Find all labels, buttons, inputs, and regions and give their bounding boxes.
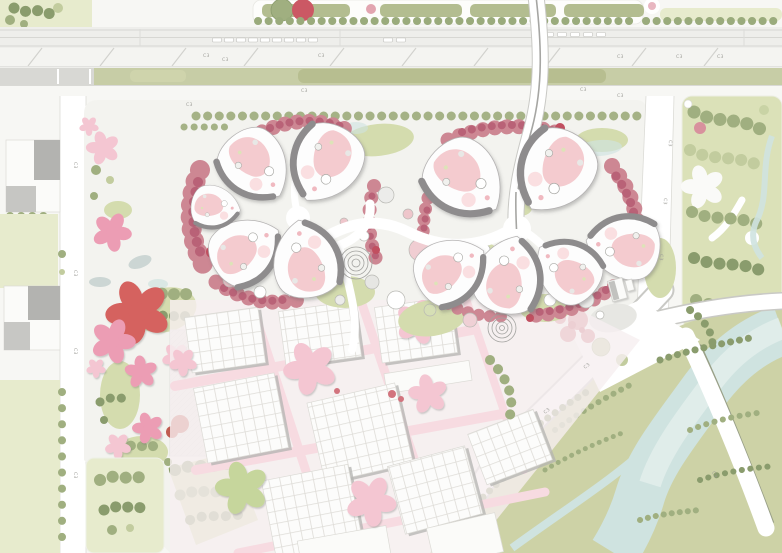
svg-text:C3: C3 [717,54,724,60]
svg-text:C3: C3 [667,140,673,147]
svg-text:C3: C3 [222,57,229,63]
svg-text:C3: C3 [617,93,624,99]
svg-text:C3: C3 [318,53,325,59]
svg-text:C3: C3 [72,348,78,355]
svg-text:C3: C3 [186,102,193,108]
median-strip [0,68,782,85]
svg-text:C3: C3 [301,88,308,94]
southwest-lawn-strip [0,380,60,553]
masterplan-canvas: C3 C3 C3 C3 C3 C3 C3 C3 C3 C3 C3 C3 C3 C… [0,0,782,553]
west-lawn [0,214,58,288]
svg-text:C3: C3 [72,270,78,277]
svg-text:C3: C3 [580,87,587,93]
highway [0,27,782,86]
svg-text:C3: C3 [662,198,668,205]
west-building-1 [6,140,60,212]
svg-text:C3: C3 [658,254,664,261]
pink-tree [366,4,376,14]
svg-text:C3: C3 [72,162,78,169]
svg-text:C3: C3 [72,472,78,479]
west-building-2 [4,286,60,350]
road-marker-label: C3 [203,53,210,59]
svg-text:C3: C3 [617,54,624,60]
pink-tree [694,122,706,134]
svg-text:C3: C3 [676,54,683,60]
